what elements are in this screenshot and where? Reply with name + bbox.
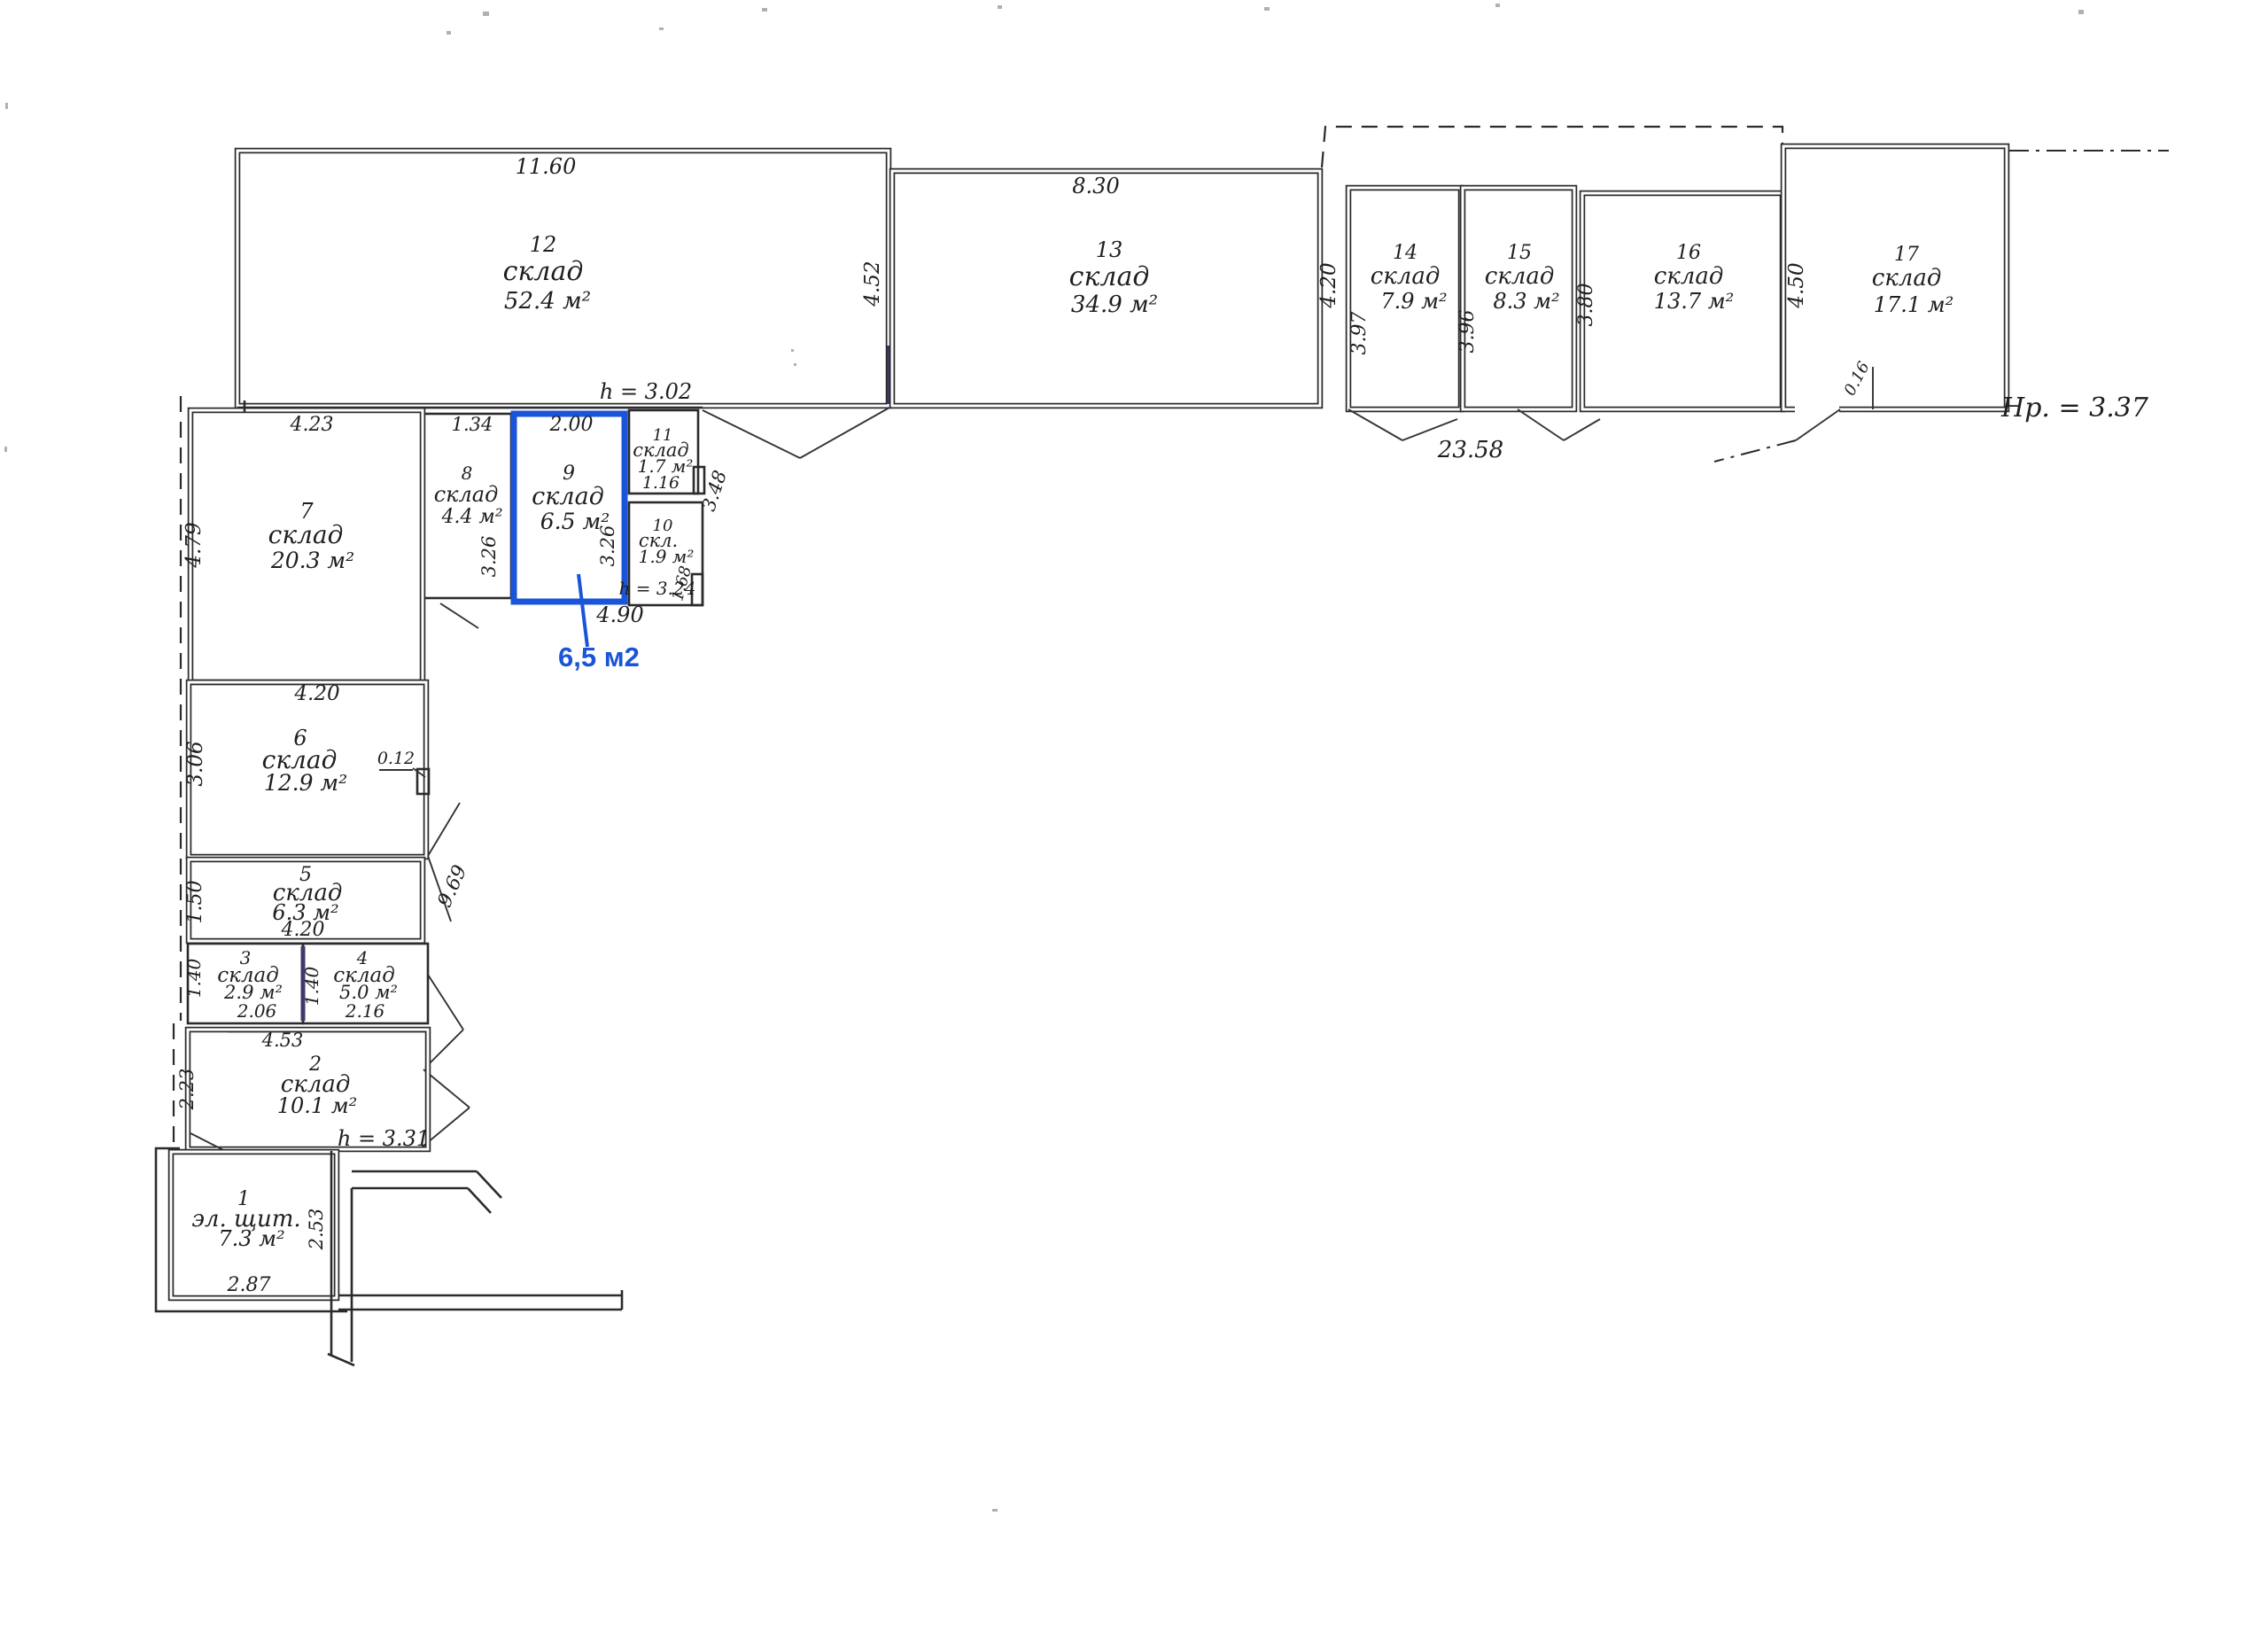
adjacent-wall-structure	[328, 1151, 622, 1365]
dim-room7-left: 4.79	[183, 522, 206, 568]
dim-corridor-left: 9.69	[434, 862, 472, 911]
room-17-name: склад	[1872, 265, 1942, 292]
dim-room1-bottom: 2.87	[227, 1274, 271, 1296]
dim-room14-left: 3.97	[1348, 312, 1371, 355]
room-5: 5 склад 6.3 м² 1.50 4.20	[184, 859, 423, 941]
dim-room11-bottom: 1.16	[642, 473, 680, 493]
building-height-note: Нр. = 3.37	[2000, 393, 2149, 424]
floor-plan-drawing: 12 склад 52.4 м² 11.60 h = 3.02 4.52 13 …	[0, 0, 2268, 1625]
corridor-doors-top: 23.58	[1348, 409, 1600, 463]
dim-room4-bottom: 2.16	[345, 1000, 385, 1022]
highlight-leader-line	[579, 574, 587, 647]
room-9-name: склад	[532, 483, 604, 510]
room-12: 12 склад 52.4 м² 11.60 h = 3.02 4.52	[237, 151, 889, 406]
dim-room9-right: 3.26	[597, 525, 618, 567]
dim-room1-right: 2.53	[306, 1209, 327, 1251]
dim-room17-left: 4.50	[1785, 262, 1808, 308]
dim-room6-left: 3.06	[184, 741, 207, 786]
floor-plan-page: 12 склад 52.4 м² 11.60 h = 3.02 4.52 13 …	[0, 0, 2268, 1625]
dim-room8-top: 1.34	[452, 414, 493, 435]
dim-room12-top: 11.60	[516, 154, 577, 179]
dim-room5-left: 1.50	[184, 881, 206, 924]
room-14-name: склад	[1371, 263, 1441, 290]
room-12-name: склад	[503, 256, 584, 287]
room-15-name: склад	[1485, 263, 1555, 290]
room-13: 13 склад 34.9 м² 8.30 4.20	[892, 171, 1340, 406]
room-13-number: 13	[1096, 237, 1123, 262]
room-6: 6 склад 12.9 м² 4.20 3.06 0.12	[184, 682, 429, 857]
dim-room3-bottom: 2.06	[237, 1000, 277, 1022]
room-9-highlighted[interactable]: 9 склад 6.5 м² 2.00 3.26 4.90 6,5 м2	[514, 414, 644, 673]
room-17-area: 17.1 м²	[1874, 292, 1954, 317]
room-8-area: 4.4 м²	[440, 506, 502, 528]
room-2-area: 10.1 м²	[277, 1093, 358, 1118]
dim-room13-right: 4.20	[1317, 262, 1340, 308]
dim-room6-pillar: 0.12	[377, 749, 415, 768]
dim-room2-left: 2.23	[176, 1069, 198, 1111]
room-8: 8 склад 4.4 м² 1.34 3.26	[423, 414, 511, 628]
room-16-name: склад	[1654, 263, 1724, 290]
dim-room9-top: 2.00	[549, 414, 594, 436]
room-3: 3 склад 2.9 м² 1.40 2.06	[183, 944, 303, 1023]
room-15-number: 15	[1507, 242, 1532, 264]
dim-room6-top: 4.20	[293, 682, 339, 705]
room-6-area: 12.9 м²	[264, 770, 347, 796]
room-12-number: 12	[530, 232, 557, 257]
dim-rooms34-bottom: 4.53	[261, 1030, 304, 1051]
room-1-area: 7.3 м²	[218, 1226, 284, 1251]
dim-room17-notch: 0.16	[1840, 359, 1873, 399]
dim-wall-12-13: 4.52	[861, 260, 884, 307]
room-11: 11 склад 1.7 м² 1.16 3.48	[629, 410, 731, 514]
dim-corridor: 23.58	[1437, 437, 1503, 463]
room-15: 15 склад 8.3 м² 3.96	[1456, 188, 1574, 409]
corridor-doors-middle	[703, 408, 889, 458]
room-16: 16 склад 13.7 м² 3.80	[1575, 193, 1783, 409]
room-14-area: 7.9 м²	[1380, 289, 1447, 314]
dim-room4-left: 1.40	[301, 966, 322, 1006]
room-15-area: 8.3 м²	[1493, 289, 1559, 314]
room-1: 1 эл. щит. 7.3 м² 2.87 2.53	[156, 1148, 347, 1311]
room-16-area: 13.7 м²	[1654, 289, 1735, 314]
dim-room5-bottom: 4.20	[281, 919, 325, 941]
room-10: 10 скл. 1.9 м² h = 3.24 1.68	[619, 502, 703, 605]
room-4: 4 склад 5.0 м² 1.40 2.16	[301, 944, 428, 1023]
room-7: 7 склад 20.3 м² 4.23 4.79	[183, 400, 423, 682]
room-16-number: 16	[1676, 242, 1701, 264]
room-12-area: 52.4 м²	[504, 288, 591, 315]
dim-room12-height: h = 3.02	[600, 379, 692, 404]
wall-under-rooms-3-4: 4.53	[228, 1030, 428, 1051]
dim-room15-left: 3.96	[1456, 310, 1479, 354]
room-10-area: 1.9 м²	[639, 546, 695, 567]
room-9-number: 9	[563, 463, 575, 485]
room-8-number: 8	[462, 463, 473, 484]
room-7-name: склад	[268, 520, 344, 549]
dim-room8-right: 3.26	[478, 536, 500, 578]
dim-room7-top: 4.23	[290, 414, 334, 436]
dim-room16-left: 3.80	[1575, 284, 1597, 327]
dim-room13-top: 8.30	[1072, 174, 1119, 198]
room-17-number: 17	[1894, 244, 1919, 266]
room-7-area: 20.3 м²	[270, 548, 354, 573]
dim-room3-left: 1.40	[183, 958, 205, 998]
room-13-name: склад	[1069, 261, 1150, 292]
dim-room2-height: h = 3.31	[338, 1126, 430, 1151]
outer-boundary	[174, 127, 2169, 1148]
room-13-area: 34.9 м²	[1071, 292, 1158, 318]
highlight-area-label[interactable]: 6,5 м2	[558, 641, 640, 673]
room-14-number: 14	[1393, 242, 1417, 264]
room-8-name: склад	[434, 482, 499, 507]
room-14: 14 склад 7.9 м² 3.97	[1348, 188, 1461, 409]
